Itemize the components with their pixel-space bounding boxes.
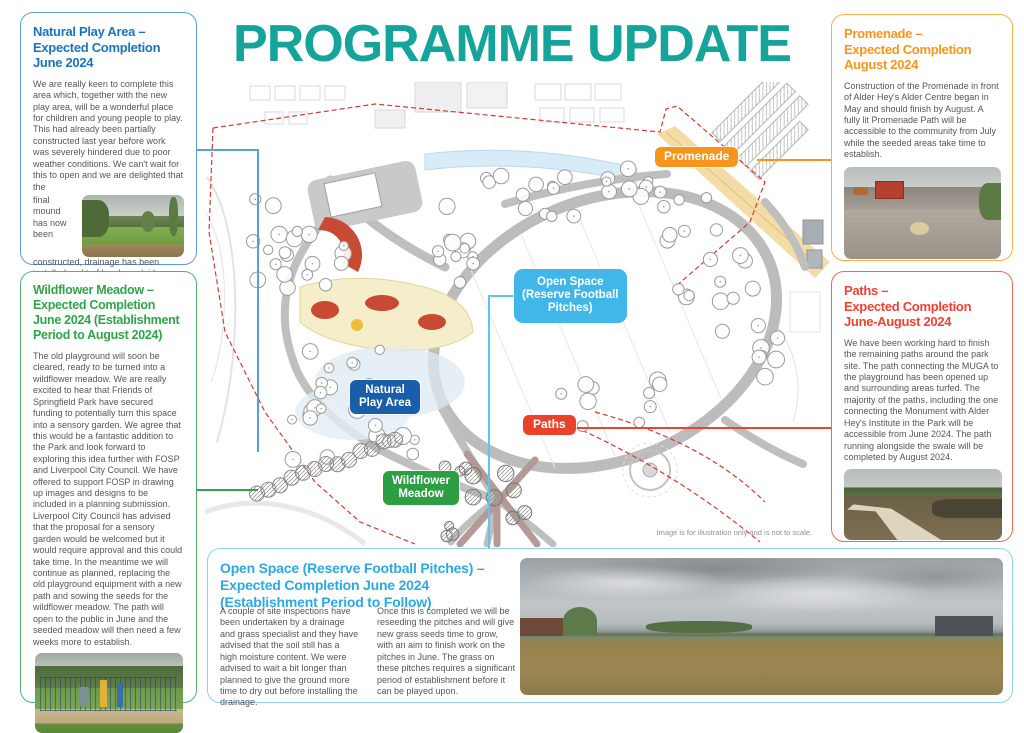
- map-disclaimer-caption: Image is for illustration only and is no…: [640, 528, 812, 537]
- natural-play-area-heading: Natural Play Area – Expected Completion …: [33, 24, 184, 71]
- photo-building: [520, 618, 563, 636]
- old-playground-photo: [35, 653, 183, 733]
- photo-play-equipment: [117, 683, 123, 707]
- promenade-construction-photo: [844, 167, 1001, 259]
- leader-open-space-v: [488, 295, 490, 548]
- photo-fence: [40, 677, 176, 711]
- map-label-wildflower-meadow: Wildflower Meadow: [383, 471, 459, 505]
- open-space-col-2: Once this is completed we will be reseed…: [377, 606, 516, 709]
- map-label-natural-play-area: Natural Play Area: [350, 380, 420, 414]
- promenade-body: Construction of the Promenade in front o…: [844, 81, 1000, 161]
- paths-box: Paths – Expected Completion June-August …: [831, 271, 1013, 542]
- natural-play-area-body: We are really keen to complete this area…: [33, 79, 184, 193]
- leader-natural-play-v: [257, 149, 259, 452]
- photo-building: [935, 616, 993, 637]
- wildflower-meadow-body: The old playground will soon be cleared,…: [33, 351, 184, 648]
- leader-wildflower: [197, 489, 258, 491]
- photo-soil: [932, 499, 1002, 517]
- photo-treeline: [646, 621, 752, 633]
- muga-courts: [306, 159, 424, 272]
- photo-tree: [141, 211, 155, 232]
- leader-open-space-h: [488, 295, 516, 297]
- context-buildings-top: [250, 82, 624, 128]
- leader-natural-play: [197, 149, 258, 151]
- photo-tree: [563, 607, 597, 634]
- paths-body: We have been working hard to finish the …: [844, 338, 1000, 464]
- wildflower-meadow-box: Wildflower Meadow – Expected Completion …: [20, 271, 197, 703]
- open-space-box: Open Space (Reserve Football Pitches) – …: [207, 548, 1013, 703]
- photo-hedge: [979, 183, 1001, 220]
- new-path-photo: [844, 469, 1002, 540]
- wildflower-meadow-heading: Wildflower Meadow – Expected Completion …: [33, 283, 184, 343]
- open-space-heading: Open Space (Reserve Football Pitches) – …: [220, 560, 530, 610]
- photo-play-equipment: [79, 687, 88, 706]
- leader-promenade: [757, 159, 831, 161]
- photo-tree: [169, 197, 178, 235]
- leader-paths: [560, 427, 831, 429]
- map-label-paths: Paths: [523, 415, 576, 435]
- map-label-open-space: Open Space (Reserve Football Pitches): [514, 269, 627, 323]
- photo-trees: [82, 200, 109, 237]
- photo-mound: [910, 222, 929, 235]
- paths-heading: Paths – Expected Completion June-August …: [844, 283, 1000, 330]
- natural-play-area-site-photo: [82, 195, 184, 257]
- promenade-box: Promenade – Expected Completion August 2…: [831, 14, 1013, 261]
- photo-red-container: [875, 181, 904, 199]
- promenade-heading: Promenade – Expected Completion August 2…: [844, 26, 1000, 73]
- natural-play-area-box: Natural Play Area – Expected Completion …: [20, 12, 197, 265]
- photo-digger: [853, 187, 867, 195]
- open-space-field-photo: [520, 558, 1003, 695]
- open-space-col-1: A couple of site inspections have been u…: [220, 606, 359, 709]
- photo-play-equipment: [100, 680, 107, 707]
- map-label-promenade: Promenade: [655, 147, 738, 167]
